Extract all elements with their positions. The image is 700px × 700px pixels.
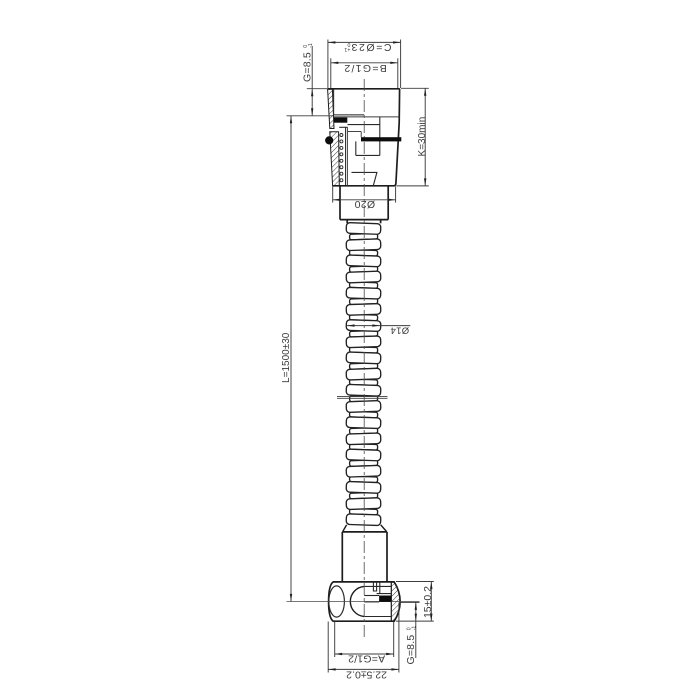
svg-text:A=G1/2: A=G1/2 xyxy=(348,653,385,665)
svg-text:15±0.2: 15±0.2 xyxy=(422,586,434,618)
svg-text:G=8.5: G=8.5 xyxy=(405,635,417,665)
svg-text:Ø20: Ø20 xyxy=(354,198,375,210)
svg-text:0: 0 xyxy=(347,41,350,47)
svg-text:L=1500±30: L=1500±30 xyxy=(281,332,292,383)
svg-text:K=30min: K=30min xyxy=(417,117,428,157)
svg-text:C=Ø23: C=Ø23 xyxy=(350,41,392,53)
svg-text:-1: -1 xyxy=(308,43,314,48)
svg-text:B=G1/2: B=G1/2 xyxy=(343,62,387,74)
svg-text:Ø14: Ø14 xyxy=(390,325,409,336)
svg-text:-1: -1 xyxy=(411,626,417,631)
svg-text:22.5±0.2: 22.5±0.2 xyxy=(346,668,387,680)
svg-text:G=8.5: G=8.5 xyxy=(302,52,314,82)
